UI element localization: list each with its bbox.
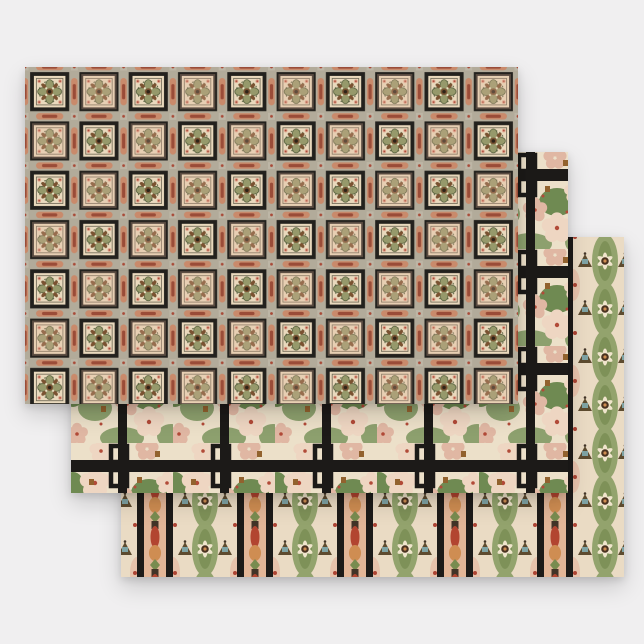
product-mockup bbox=[0, 0, 644, 644]
tile-grid-pattern-canvas bbox=[25, 67, 518, 404]
sheet-tile-grid-pattern bbox=[25, 67, 518, 404]
